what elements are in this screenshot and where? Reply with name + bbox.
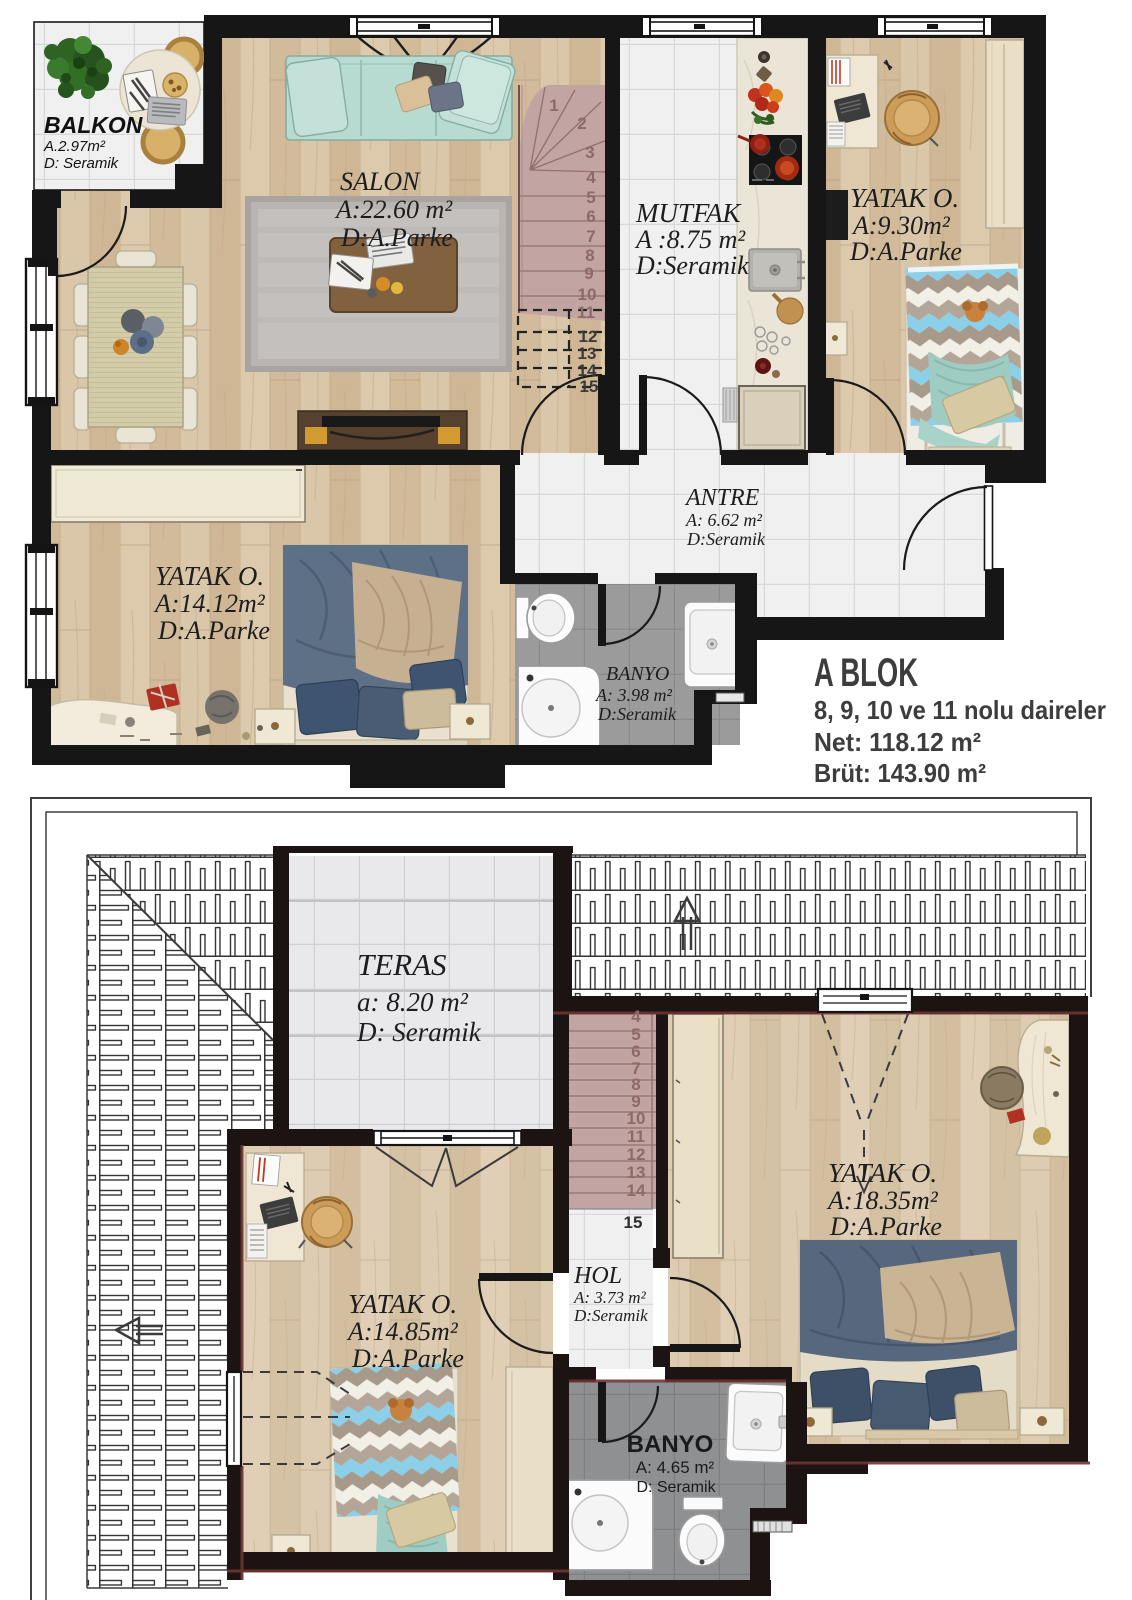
- svg-text:12: 12: [627, 1145, 646, 1164]
- svg-text:2: 2: [577, 114, 586, 133]
- svg-text:D:A.Parke: D:A.Parke: [849, 237, 962, 266]
- svg-text:D:A.Parke: D:A.Parke: [340, 223, 453, 252]
- svg-text:3: 3: [585, 143, 594, 162]
- svg-text:A: 3.73 m²: A: 3.73 m²: [573, 1288, 647, 1307]
- svg-text:TERAS: TERAS: [357, 947, 447, 982]
- svg-text:ANTRE: ANTRE: [684, 485, 760, 511]
- svg-text:D:A.Parke: D:A.Parke: [351, 1344, 464, 1373]
- svg-text:A.2.97m²: A.2.97m²: [43, 138, 106, 155]
- svg-text:YATAK O.: YATAK O.: [155, 561, 264, 591]
- svg-text:A:14.85m²: A:14.85m²: [346, 1317, 459, 1346]
- svg-text:D: Seramik: D: Seramik: [44, 155, 120, 172]
- svg-text:D:A.Parke: D:A.Parke: [157, 616, 270, 645]
- svg-text:D:Seramik: D:Seramik: [573, 1306, 648, 1325]
- svg-text:4: 4: [586, 168, 596, 187]
- svg-text:A: 6.62 m²: A: 6.62 m²: [685, 510, 762, 530]
- svg-text:Net: 118.12 m²: Net: 118.12 m²: [814, 727, 981, 757]
- svg-text:D:Seramik: D:Seramik: [686, 529, 766, 549]
- svg-text:8: 8: [585, 246, 594, 265]
- svg-text:A:14.12m²: A:14.12m²: [153, 589, 266, 618]
- svg-text:A: 3.98 m²: A: 3.98 m²: [595, 685, 672, 705]
- svg-text:A BLOK: A BLOK: [814, 651, 918, 695]
- svg-text:HOL: HOL: [573, 1263, 622, 1289]
- svg-text:13: 13: [627, 1163, 646, 1182]
- svg-text:14: 14: [627, 1181, 646, 1200]
- svg-text:D:Seramik: D:Seramik: [635, 251, 749, 280]
- svg-text:11: 11: [627, 1127, 645, 1146]
- svg-text:YATAK O.: YATAK O.: [828, 1158, 937, 1188]
- svg-text:YATAK O.: YATAK O.: [850, 183, 959, 213]
- svg-text:MUTFAK: MUTFAK: [635, 198, 743, 228]
- svg-text:BANYO: BANYO: [627, 1431, 714, 1458]
- svg-text:10: 10: [627, 1109, 646, 1128]
- svg-text:A:22.60 m²: A:22.60 m²: [334, 195, 453, 224]
- svg-text:A :8.75 m²: A :8.75 m²: [634, 225, 746, 254]
- svg-text:SALON: SALON: [340, 167, 421, 196]
- svg-text:9: 9: [584, 264, 593, 283]
- svg-text:6: 6: [586, 207, 595, 226]
- svg-text:BANYO: BANYO: [606, 663, 669, 685]
- svg-text:D: Seramik: D: Seramik: [356, 1017, 482, 1047]
- svg-text:5: 5: [586, 188, 595, 207]
- svg-text:1: 1: [549, 96, 558, 115]
- svg-text:11: 11: [577, 303, 595, 322]
- svg-text:A:9.30m²: A:9.30m²: [851, 211, 951, 240]
- svg-text:D:Seramik: D:Seramik: [597, 704, 677, 724]
- svg-text:a: 8.20 m²: a: 8.20 m²: [357, 987, 469, 1017]
- svg-text:7: 7: [586, 227, 595, 246]
- svg-text:YATAK O.: YATAK O.: [348, 1289, 457, 1319]
- svg-text:D: Seramik: D: Seramik: [636, 1479, 716, 1496]
- svg-text:8, 9, 10 ve 11 nolu daireler: 8, 9, 10 ve 11 nolu daireler: [814, 695, 1106, 725]
- svg-text:D:A.Parke: D:A.Parke: [829, 1212, 942, 1241]
- svg-text:A:18.35m²: A:18.35m²: [826, 1186, 939, 1215]
- svg-text:15: 15: [580, 377, 599, 396]
- svg-text:4: 4: [631, 1007, 641, 1026]
- svg-text:10: 10: [578, 285, 597, 304]
- svg-text:A: 4.65 m²: A: 4.65 m²: [636, 1458, 715, 1477]
- svg-text:BALKON: BALKON: [44, 112, 143, 138]
- svg-text:Brüt: 143.90 m²: Brüt: 143.90 m²: [814, 758, 986, 788]
- svg-text:15: 15: [624, 1213, 643, 1232]
